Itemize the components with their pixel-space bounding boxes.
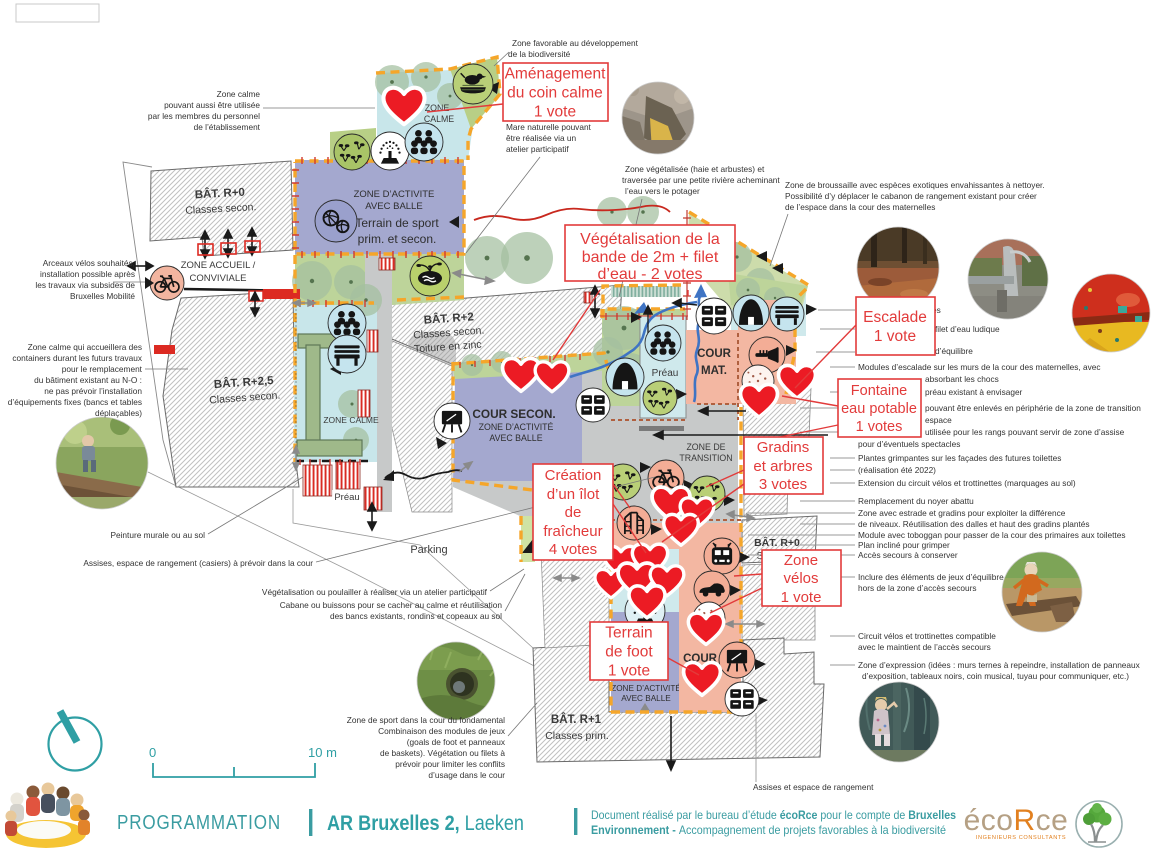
svg-text:Zone calme qui accueillera des: Zone calme qui accueillera des: [28, 342, 142, 352]
svg-text:Préau: Préau: [652, 368, 679, 379]
svg-text:BÂT. R+0: BÂT. R+0: [194, 186, 245, 202]
svg-text:BÂT. R+0: BÂT. R+0: [754, 536, 800, 549]
svg-text:prim. et secon.: prim. et secon.: [358, 232, 437, 246]
svg-text:être réalisée via un: être réalisée via un: [506, 133, 576, 143]
svg-text:Peinture murale ou au sol: Peinture murale ou au sol: [110, 530, 205, 540]
svg-text:prévoir pour limiter les confl: prévoir pour limiter les conflits: [395, 759, 505, 769]
svg-text:Zone de sport dans la cour du: Zone de sport dans la cour du fondamenta…: [347, 715, 505, 725]
svg-text:des bancs existants, rondins e: des bancs existants, rondins et copeaux …: [330, 611, 502, 621]
svg-text:Module avec toboggan pour pass: Module avec toboggan pour passer de la c…: [858, 530, 1126, 540]
svg-text:atelier participatif: atelier participatif: [506, 144, 569, 154]
svg-text:écoRce: écoRce: [964, 804, 1069, 837]
svg-text:Zone favorable au développemen: Zone favorable au développement: [512, 38, 639, 48]
svg-text:1 vote: 1 vote: [874, 328, 916, 345]
svg-text:du bâtiment existant au N-O :: du bâtiment existant au N-O :: [34, 375, 142, 385]
svg-text:1 vote: 1 vote: [608, 662, 650, 679]
svg-text:et arbres: et arbres: [753, 458, 812, 475]
svg-text:Végétalisation ou poulailler à: Végétalisation ou poulailler à réaliser …: [262, 587, 488, 597]
svg-text:MAT.: MAT.: [701, 365, 727, 377]
svg-text:de l’espace dans la cour des m: de l’espace dans la cour des maternelles: [785, 202, 935, 212]
svg-text:hors de la zone d’accès secour: hors de la zone d’accès secours: [858, 583, 977, 593]
svg-text:Modules d’escalade sur les mur: Modules d’escalade sur les murs de la co…: [858, 362, 1101, 372]
svg-text:bande de 2m + filet: bande de 2m + filet: [582, 249, 719, 266]
svg-text:0: 0: [149, 745, 156, 760]
svg-text:d’équipements fixes (bancs et: d’équipements fixes (bancs et tables: [8, 397, 142, 407]
svg-text:Terrain de sport: Terrain de sport: [355, 216, 439, 230]
svg-text:déplaçables): déplaçables): [95, 408, 142, 418]
svg-text:Assises et espace de rangement: Assises et espace de rangement: [753, 782, 874, 792]
svg-text:AR Bruxelles 2, Laeken: AR Bruxelles 2, Laeken: [327, 811, 524, 835]
svg-text:d’un îlot: d’un îlot: [547, 486, 600, 503]
svg-text:absorbant les chocs: absorbant les chocs: [925, 374, 999, 384]
svg-text:de niveaux. Réutilisation des: de niveaux. Réutilisation des dalles et …: [858, 519, 1090, 529]
svg-text:Fontaine: Fontaine: [851, 383, 907, 399]
svg-text:du coin calme: du coin calme: [507, 84, 603, 101]
svg-text:traversée par une petite riviè: traversée par une petite rivière achemin…: [622, 175, 780, 185]
svg-text:d’exposition, tableaux noirs,: d’exposition, tableaux noirs, coin music…: [862, 671, 1129, 681]
svg-text:Combinaison des modules de jeu: Combinaison des modules de jeux: [378, 726, 506, 736]
svg-text:espace: espace: [925, 415, 952, 425]
svg-text:eau potable: eau potable: [841, 401, 917, 417]
svg-text:AVEC BALLE: AVEC BALLE: [621, 694, 671, 703]
svg-text:pour le remplacement: pour le remplacement: [62, 364, 143, 374]
svg-text:Zone de broussaille avec espèc: Zone de broussaille avec espèces exotiqu…: [785, 180, 1045, 190]
svg-text:Classes prim.: Classes prim.: [545, 730, 609, 742]
svg-text:pour d’éventuels spectacles: pour d’éventuels spectacles: [858, 439, 960, 449]
svg-text:Préau: Préau: [334, 492, 359, 503]
svg-text:Inclure des éléments de jeux d: Inclure des éléments de jeux d’équilibre: [858, 572, 1004, 582]
svg-text:Assises, espace de rangement (: Assises, espace de rangement (casiers) à…: [83, 558, 313, 568]
svg-text:ZONE D’ACTIVITÉ: ZONE D’ACTIVITÉ: [611, 683, 681, 693]
svg-text:de baskets). Végétation ou fil: de baskets). Végétation ou filets à: [380, 748, 505, 758]
svg-text:d’usage dans le cour: d’usage dans le cour: [428, 770, 505, 780]
svg-text:Escalade: Escalade: [863, 309, 927, 326]
svg-text:les travaux via subsides de: les travaux via subsides de: [35, 280, 135, 290]
svg-text:CONVIVIALE: CONVIVIALE: [189, 273, 246, 284]
svg-text:pouvant être enlevés en périph: pouvant être enlevés en périphérie de la…: [925, 403, 1141, 413]
svg-text:1 vote: 1 vote: [781, 589, 822, 606]
svg-text:Zone avec estrade et gradins p: Zone avec estrade et gradins pour exploi…: [858, 508, 1066, 518]
svg-text:Remplacement du noyer abattu: Remplacement du noyer abattu: [858, 496, 974, 506]
svg-text:Zone d’expression (idées : mur: Zone d’expression (idées : murs ternes à…: [858, 660, 1141, 670]
svg-text:(goals de foot et panneaux: (goals de foot et panneaux: [407, 737, 506, 747]
svg-text:Zone calme: Zone calme: [217, 89, 261, 99]
svg-text:Zone: Zone: [784, 552, 818, 569]
svg-text:Zone végétalisée (haie et arbu: Zone végétalisée (haie et arbustes) et: [625, 164, 765, 174]
svg-text:de la biodiversité: de la biodiversité: [508, 49, 571, 59]
svg-text:Parking: Parking: [410, 544, 447, 556]
svg-text:3 votes: 3 votes: [759, 476, 807, 493]
svg-text:d’équilibre: d’équilibre: [935, 346, 973, 356]
svg-text:Cabane ou buissons pour se cac: Cabane ou buissons pour se cacher au cal…: [280, 600, 503, 610]
svg-text:de: de: [565, 504, 582, 521]
svg-text:vélos: vélos: [783, 570, 818, 587]
svg-text:installation possible après: installation possible après: [40, 269, 135, 279]
svg-text:AVEC BALLE: AVEC BALLE: [365, 201, 422, 212]
svg-text:containers durant les futurs t: containers durant les futurs travaux: [12, 353, 142, 363]
svg-text:PROGRAMMATION: PROGRAMMATION: [117, 812, 281, 834]
svg-text:l’eau vers le potager: l’eau vers le potager: [625, 186, 700, 196]
svg-text:par les membres du personnel: par les membres du personnel: [148, 111, 260, 121]
svg-text:Bruxelles Mobilité: Bruxelles Mobilité: [70, 291, 135, 301]
svg-text:AVEC BALLE: AVEC BALLE: [489, 433, 542, 443]
svg-text:CALME: CALME: [424, 114, 454, 124]
svg-text:Circuit vélos et trottinettes: Circuit vélos et trottinettes compatible: [858, 631, 996, 641]
svg-text:10 m: 10 m: [308, 745, 337, 760]
svg-text:Document réalisé par le bureau: Document réalisé par le bureau d’étude é…: [591, 809, 956, 822]
svg-text:Végétalisation de la: Végétalisation de la: [580, 231, 720, 248]
svg-text:1 votes: 1 votes: [856, 419, 903, 435]
svg-text:de foot: de foot: [605, 643, 653, 660]
svg-text:ZONE CALME: ZONE CALME: [323, 415, 379, 425]
svg-text:Environnement - Accompagnement: Environnement - Accompagnement de projet…: [591, 824, 946, 837]
svg-text:ZONE ACCUEIL /: ZONE ACCUEIL /: [181, 260, 256, 271]
svg-text:filet d’eau ludique: filet d’eau ludique: [935, 324, 1000, 334]
svg-text:ZONE D’ACTIVITE: ZONE D’ACTIVITE: [354, 189, 435, 200]
svg-text:Extension du circuit vélos et: Extension du circuit vélos et trottinett…: [858, 478, 1076, 488]
svg-text:INGENIEURS CONSULTANTS: INGENIEURS CONSULTANTS: [976, 835, 1066, 841]
svg-text:Aménagement: Aménagement: [505, 65, 607, 82]
svg-text:Arceaux vélos souhaités,: Arceaux vélos souhaités,: [43, 258, 135, 268]
svg-text:ZONE DE: ZONE DE: [686, 442, 725, 452]
svg-text:COUR: COUR: [697, 348, 732, 360]
svg-text:avec le maintient de l’accès s: avec le maintient de l’accès secours: [858, 642, 991, 652]
svg-text:pouvant aussi être utilisée: pouvant aussi être utilisée: [164, 100, 260, 110]
svg-text:ZONE D’ACTIVITÉ: ZONE D’ACTIVITÉ: [479, 422, 554, 432]
svg-text:d’eau - 2 votes: d’eau - 2 votes: [598, 266, 703, 283]
svg-text:Accès secours à conserver: Accès secours à conserver: [858, 550, 958, 560]
svg-text:ne pas prévoir l’installation: ne pas prévoir l’installation: [44, 386, 142, 396]
svg-text:BÂT. R+1: BÂT. R+1: [551, 713, 602, 726]
svg-text:1 vote: 1 vote: [534, 103, 576, 120]
svg-text:Plan incliné pour grimper: Plan incliné pour grimper: [858, 540, 950, 550]
svg-text:Mare naturelle pouvant: Mare naturelle pouvant: [506, 122, 592, 132]
svg-text:COUR SECON.: COUR SECON.: [472, 407, 555, 421]
svg-text:4 votes: 4 votes: [549, 541, 597, 558]
svg-text:fraîcheur: fraîcheur: [543, 523, 602, 540]
svg-text:Création: Création: [545, 467, 602, 484]
svg-text:Possibilité d’y déplacer le ca: Possibilité d’y déplacer le cabanon de r…: [785, 191, 1037, 201]
svg-text:Plantes grimpantes sur les faç: Plantes grimpantes sur les façades des f…: [858, 453, 1061, 463]
svg-text:de l’établissement: de l’établissement: [194, 122, 261, 132]
svg-text:préau existant à envisager: préau existant à envisager: [925, 387, 1023, 397]
svg-text:TRANSITION: TRANSITION: [679, 453, 732, 463]
svg-text:Gradins: Gradins: [757, 439, 810, 456]
svg-text:utilisée pour les rangs pouvan: utilisée pour les rangs pouvant servir d…: [925, 427, 1125, 437]
svg-text:(réalisation été 2022): (réalisation été 2022): [858, 465, 936, 475]
svg-text:Terrain: Terrain: [605, 624, 652, 641]
